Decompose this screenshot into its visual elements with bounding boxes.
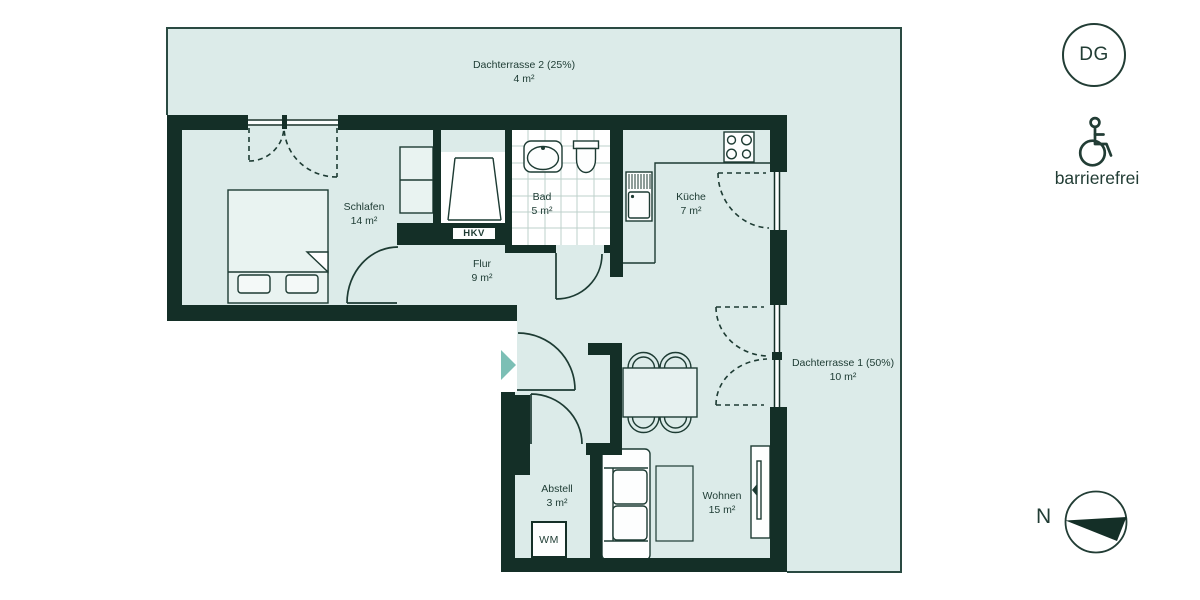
dining-table [623, 368, 697, 417]
floorplan-page: Dachterrasse 2 (25%) 4 m² Schlafen 14 m²… [0, 0, 1200, 600]
room-label-flur: Flur 9 m² [472, 258, 493, 285]
shaft-niche [441, 152, 505, 223]
bathroom-sink [524, 141, 562, 172]
room-label-dachterrasse-2: Dachterrasse 2 (25%) 4 m² [473, 59, 575, 86]
washing-machine-box: WM [531, 521, 567, 558]
wheelchair-icon [1072, 116, 1120, 170]
entrance-marker [490, 322, 517, 391]
accessibility-label: barrierefrei [1055, 168, 1140, 189]
stove [724, 132, 754, 162]
tv-board [751, 446, 770, 538]
room-label-wohnen: Wohnen 15 m² [703, 490, 742, 517]
sofa [602, 449, 650, 560]
heating-distributor-box: HKV [451, 226, 497, 241]
room-label-dachterrasse-1: Dachterrasse 1 (50%) 10 m² [792, 357, 894, 384]
room-label-bad: Bad 5 m² [532, 191, 553, 218]
compass-icon [1056, 483, 1136, 563]
room-label-schlafen: Schlafen 14 m² [344, 201, 385, 228]
floorplan-drawing [0, 0, 1200, 600]
compass-needle [1066, 517, 1127, 541]
compass-north-label: N [1036, 505, 1051, 529]
kitchen-sink [626, 172, 652, 221]
room-label-kueche: Küche 7 m² [676, 191, 706, 218]
bed [228, 190, 328, 303]
pillow [238, 275, 270, 293]
wardrobe [400, 147, 433, 213]
floor-level-badge: DG [1062, 23, 1126, 87]
pillow [286, 275, 318, 293]
door-divider-tick [772, 352, 782, 360]
room-label-abstell: Abstell 3 m² [541, 483, 573, 510]
